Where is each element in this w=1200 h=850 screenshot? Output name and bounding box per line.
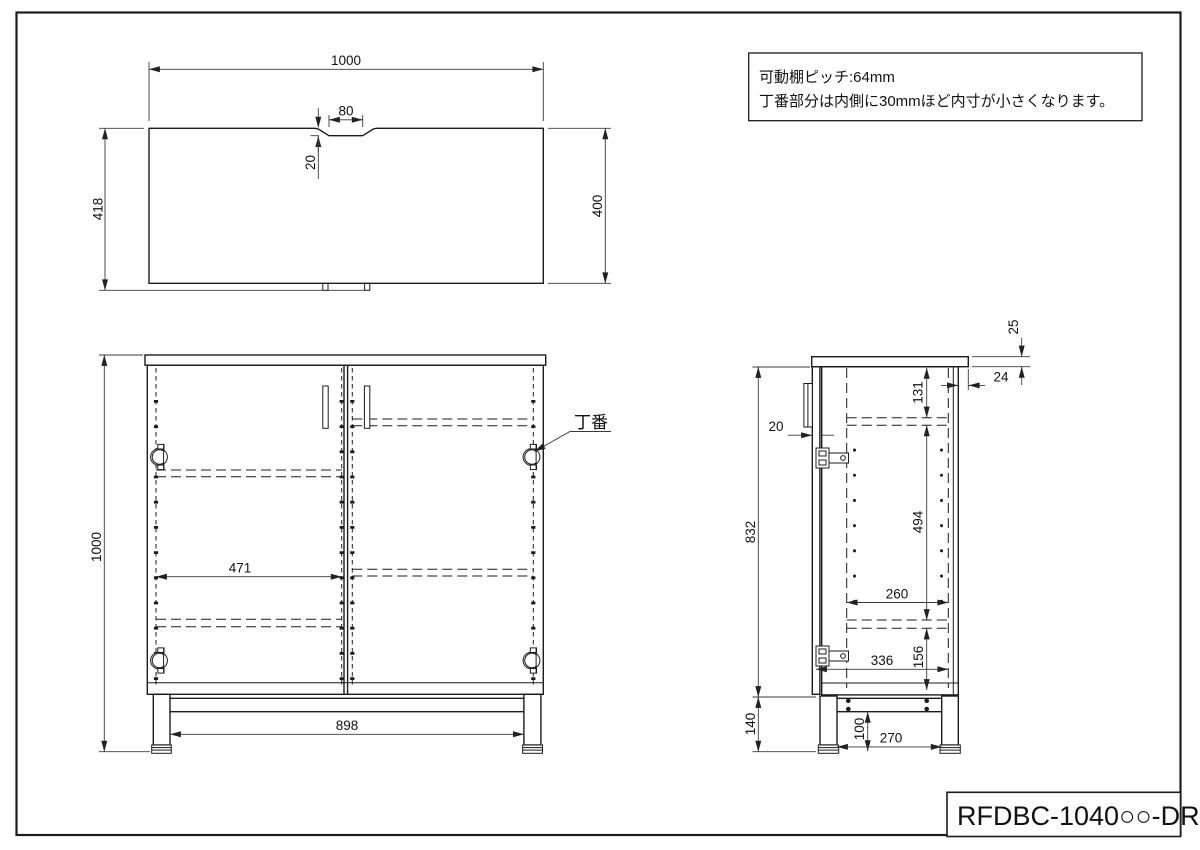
- dim-side-top-clearance: 131: [911, 381, 926, 404]
- side-leg-front: [820, 696, 837, 745]
- title-block: RFDBC-1040○○-DR: [947, 792, 1200, 836]
- side-foot-back: [940, 745, 960, 753]
- dim-notch-width: 80: [338, 104, 353, 119]
- dim-side-leg-span: 270: [880, 731, 903, 746]
- dim-front-height: 1000: [89, 532, 104, 562]
- side-view: 832 140 20 25 24 131 494 156 260: [743, 319, 1030, 753]
- dim-side-body-height: 832: [743, 521, 758, 544]
- side-body: [822, 367, 959, 695]
- dim-side-back-overhang: 24: [993, 370, 1009, 385]
- side-leg-back: [942, 696, 959, 745]
- front-leg-right: [524, 694, 541, 745]
- side-top-panel: [812, 357, 969, 367]
- top-view: 1000 418 400 80 20: [91, 53, 612, 290]
- front-body: [147, 365, 543, 694]
- dim-front-inner-width: 471: [229, 561, 252, 576]
- handle-tab-right: [365, 283, 370, 290]
- hinge-leader-line: [535, 432, 612, 452]
- side-door: [812, 367, 820, 695]
- hinge-bottom-right: [523, 648, 540, 673]
- dim-front-leg-span: 898: [336, 718, 359, 733]
- front-foot-left: [152, 745, 172, 753]
- base-screws: [846, 699, 929, 712]
- dim-side-bottom-clearance: 156: [911, 646, 926, 669]
- side-hinge-top: [816, 448, 849, 468]
- dim-side-inner-total-depth: 336: [871, 653, 894, 668]
- dim-side-door-thickness: 20: [768, 419, 783, 434]
- dim-side-inner-height: 494: [911, 510, 926, 533]
- note-line-2: 丁番部分は内側に30mmほど内寸が小さくなります。: [759, 93, 1114, 110]
- handle-tab-left: [323, 283, 328, 290]
- dim-top-depth-total: 418: [91, 198, 106, 221]
- cad-drawing-canvas: 可動棚ピッチ:64mm 丁番部分は内側に30mmほど内寸が小さくなります。 RF…: [0, 0, 1200, 850]
- front-top-panel: [145, 355, 546, 365]
- note-box-frame: [749, 53, 1142, 121]
- dim-top-width: 1000: [331, 53, 361, 68]
- dim-side-inner-depth: 260: [886, 586, 909, 601]
- dim-top-depth: 400: [590, 195, 605, 218]
- side-foot-front: [818, 745, 838, 753]
- drawing-page: 可動棚ピッチ:64mm 丁番部分は内側に30mmほど内寸が小さくなります。 RF…: [0, 0, 1200, 850]
- front-view: 1000 471 898 丁番: [89, 355, 611, 753]
- top-panel-outline: [149, 128, 543, 283]
- front-foot-right: [523, 745, 543, 753]
- dim-side-top-thickness: 25: [1006, 319, 1021, 334]
- side-hinge-bottom: [816, 646, 849, 666]
- note-box: 可動棚ピッチ:64mm 丁番部分は内側に30mmほど内寸が小さくなります。: [749, 53, 1142, 121]
- dim-side-leg-height: 100: [852, 718, 867, 741]
- door-handle-right: [364, 386, 369, 428]
- door-handle-left: [323, 386, 328, 428]
- note-line-1: 可動棚ピッチ:64mm: [759, 69, 895, 86]
- hinge-label: 丁番: [574, 413, 608, 432]
- dim-notch-depth: 20: [303, 155, 318, 170]
- hinge-top-right: [523, 444, 540, 469]
- dim-side-base-height: 140: [743, 713, 758, 736]
- front-leg-left: [153, 694, 170, 745]
- model-number: RFDBC-1040○○-DR: [957, 801, 1200, 831]
- hinge-bottom-left: [151, 648, 168, 673]
- hinge-top-left: [151, 444, 168, 469]
